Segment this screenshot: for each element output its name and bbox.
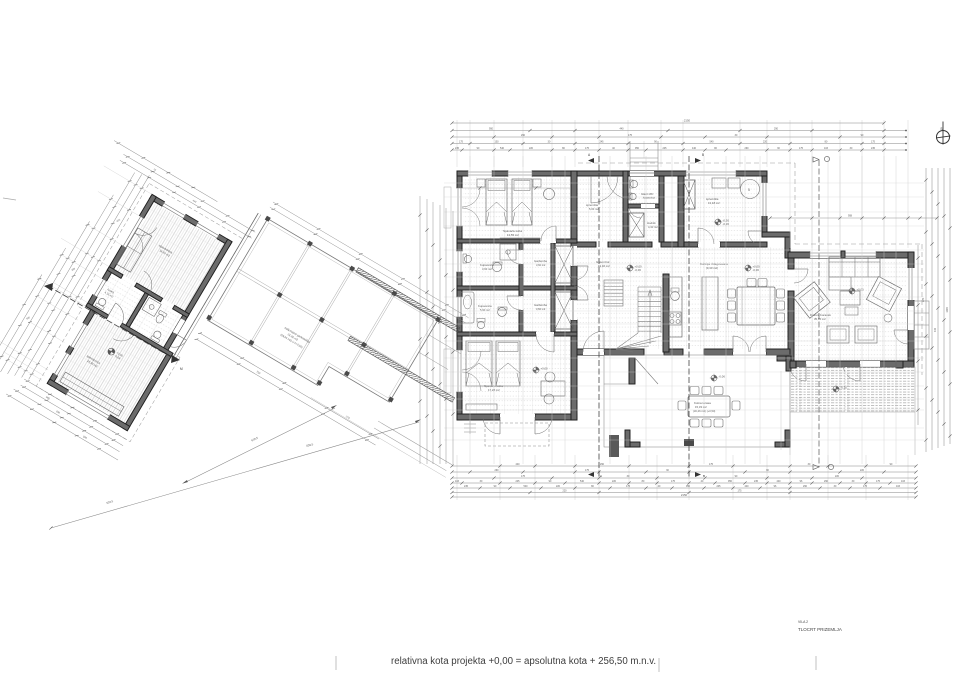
svg-text:440: 440 — [745, 485, 750, 488]
svg-text:950: 950 — [728, 480, 733, 483]
svg-text:13,18 m2: 13,18 m2 — [708, 201, 720, 205]
svg-text:5,90 m2: 5,90 m2 — [480, 308, 490, 312]
svg-text:220: 220 — [763, 140, 768, 143]
svg-text:Garderoba: Garderoba — [534, 303, 547, 307]
svg-text:540: 540 — [710, 140, 715, 143]
svg-text:2150: 2150 — [684, 119, 691, 123]
svg-text:3,60 m2: 3,60 m2 — [482, 267, 492, 271]
svg-text:440: 440 — [620, 127, 625, 130]
svg-text:3,60 m2: 3,60 m2 — [536, 263, 546, 267]
svg-text:245: 245 — [754, 480, 759, 483]
svg-text:540: 540 — [524, 485, 529, 488]
svg-text:175: 175 — [459, 140, 464, 143]
svg-text:19,46 m2: 19,46 m2 — [598, 264, 610, 268]
svg-text:175: 175 — [585, 147, 590, 150]
svg-text:245: 245 — [871, 147, 876, 150]
svg-text:+0,00: +0,00 — [541, 367, 549, 371]
svg-text:103: 103 — [896, 485, 901, 488]
svg-text:103: 103 — [495, 140, 500, 143]
svg-text:5,00 m2: 5,00 m2 — [589, 207, 599, 211]
svg-text:S: S — [940, 127, 942, 131]
svg-text:245: 245 — [464, 485, 469, 488]
svg-text:spremište: spremište — [586, 203, 599, 207]
svg-text:950: 950 — [489, 127, 494, 130]
svg-text:35,65 m2: 35,65 m2 — [814, 317, 826, 321]
svg-text:103: 103 — [901, 480, 906, 483]
svg-text:290: 290 — [745, 147, 750, 150]
svg-text:245: 245 — [516, 480, 521, 483]
svg-text:5: 5 — [748, 188, 750, 192]
svg-text:-0,06: -0,06 — [753, 268, 760, 272]
svg-text:175: 175 — [585, 469, 590, 472]
svg-text:540: 540 — [500, 147, 505, 150]
svg-text:175: 175 — [671, 480, 676, 483]
svg-text:-0,06: -0,06 — [635, 268, 642, 272]
svg-text:245: 245 — [717, 485, 722, 488]
svg-text:Kupaonica: Kupaonica — [480, 263, 494, 267]
svg-text:290: 290 — [495, 469, 500, 472]
svg-text:290: 290 — [600, 463, 605, 466]
svg-text:relativna kota projekta +0,00: relativna kota projekta +0,00 = apsolutn… — [391, 656, 656, 667]
svg-text:220: 220 — [860, 469, 865, 472]
svg-text:220: 220 — [563, 489, 568, 492]
svg-text:(30,46 m2) (+0,50): (30,46 m2) (+0,50) — [693, 409, 715, 413]
svg-text:15,33 m2: 15,33 m2 — [695, 405, 707, 409]
svg-text:M: M — [180, 367, 183, 371]
svg-text:175: 175 — [871, 140, 876, 143]
svg-text:175: 175 — [626, 485, 631, 488]
svg-text:270: 270 — [922, 297, 925, 302]
svg-text:175: 175 — [799, 147, 804, 150]
svg-text:440: 440 — [934, 327, 937, 332]
svg-text:290: 290 — [824, 480, 829, 483]
svg-text:Glavni WC: Glavni WC — [641, 192, 654, 196]
svg-text:kupaonica: kupaonica — [643, 196, 655, 200]
svg-text:290: 290 — [521, 134, 526, 137]
svg-text:440: 440 — [516, 463, 521, 466]
svg-text:VILA 2: VILA 2 — [798, 620, 808, 624]
svg-text:245: 245 — [600, 140, 605, 143]
svg-text:B: B — [703, 474, 705, 478]
svg-text:220: 220 — [556, 485, 561, 488]
svg-text:3,60 m2: 3,60 m2 — [536, 307, 546, 311]
svg-text:Garderoba: Garderoba — [534, 259, 547, 263]
svg-text:4,30 m2: 4,30 m2 — [648, 225, 658, 229]
svg-text:245: 245 — [663, 147, 668, 150]
svg-text:220: 220 — [612, 480, 617, 483]
svg-text:440: 440 — [777, 480, 782, 483]
svg-text:950: 950 — [635, 147, 640, 150]
svg-text:540: 540 — [580, 480, 585, 483]
svg-text:-0,06: -0,06 — [719, 375, 726, 379]
svg-text:+0,00: +0,00 — [857, 288, 865, 292]
svg-text:175: 175 — [738, 489, 743, 492]
svg-text:175: 175 — [521, 475, 526, 478]
svg-text:Kupaonica: Kupaonica — [478, 304, 492, 308]
svg-text:B: B — [702, 153, 704, 157]
svg-text:TLOCRT PRIZEMLJA: TLOCRT PRIZEMLJA — [798, 627, 842, 632]
svg-text:290: 290 — [774, 127, 779, 130]
svg-text:175: 175 — [876, 480, 881, 483]
svg-text:175: 175 — [863, 485, 868, 488]
svg-text:13,55 m2: 13,55 m2 — [507, 233, 519, 237]
svg-text:A: A — [600, 474, 602, 478]
svg-text:175: 175 — [709, 463, 714, 466]
svg-text:Hodnik: Hodnik — [647, 221, 656, 225]
svg-text:440: 440 — [692, 147, 697, 150]
svg-text:1090: 1090 — [946, 307, 949, 313]
svg-text:2150: 2150 — [681, 493, 688, 497]
svg-text:958: 958 — [848, 215, 853, 218]
svg-text:103: 103 — [824, 147, 829, 150]
svg-text:(9,40 m2): (9,40 m2) — [706, 266, 718, 270]
svg-text:175: 175 — [628, 134, 633, 137]
svg-text:103: 103 — [455, 480, 460, 483]
svg-text:220: 220 — [529, 147, 534, 150]
svg-text:245: 245 — [455, 147, 460, 150]
svg-text:220: 220 — [835, 475, 840, 478]
svg-text:950: 950 — [686, 485, 691, 488]
svg-text:290: 290 — [803, 485, 808, 488]
